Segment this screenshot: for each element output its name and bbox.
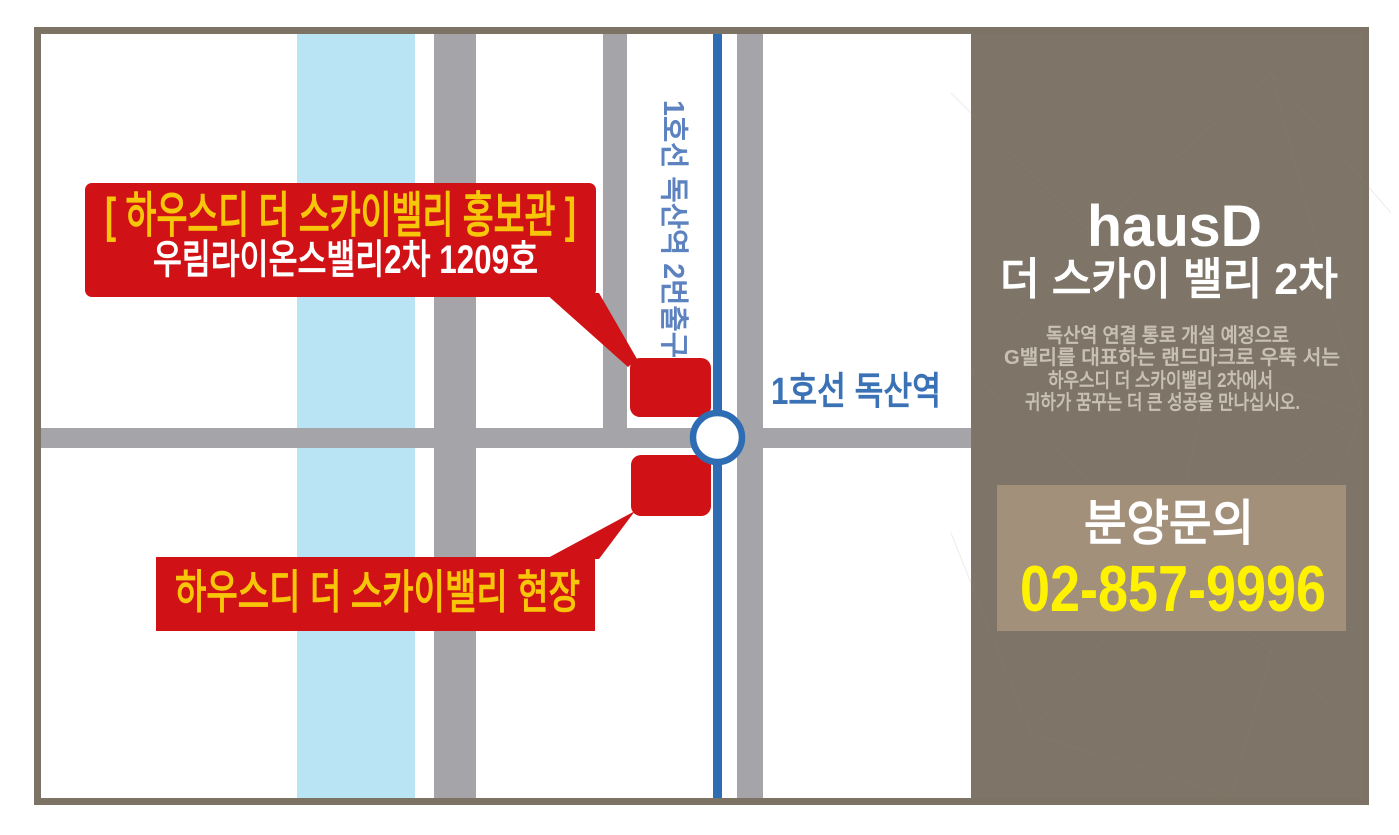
- svg-text:귀하가 꿈꾸는 더 큰 성공을 만나십시오.: 귀하가 꿈꾸는 더 큰 성공을 만나십시오.: [1025, 391, 1300, 414]
- svg-text:[ 하우스디 더 스카이밸리 홍보관 ]: [ 하우스디 더 스카이밸리 홍보관 ]: [105, 189, 576, 243]
- svg-text:G밸리를 대표하는 랜드마크로 우뚝 서는: G밸리를 대표하는 랜드마크로 우뚝 서는: [1004, 346, 1340, 369]
- svg-text:1호선 독산역: 1호선 독산역: [771, 371, 941, 413]
- svg-text:분양문의: 분양문의: [1084, 497, 1254, 551]
- svg-text:우림라이온스밸리2차 1209호: 우림라이온스밸리2차 1209호: [153, 238, 538, 282]
- svg-text:독산역 연결 통로 개설 예정으로: 독산역 연결 통로 개설 예정으로: [1046, 324, 1289, 347]
- svg-text:더 스카이 밸리 2차: 더 스카이 밸리 2차: [1000, 255, 1338, 304]
- svg-text:02-857-9996: 02-857-9996: [1020, 552, 1326, 625]
- svg-text:1호선 독산역 2번출구: 1호선 독산역 2번출구: [657, 100, 690, 358]
- svg-text:하우스디 더 스카이밸리 2차에서: 하우스디 더 스카이밸리 2차에서: [1048, 369, 1273, 392]
- svg-text:hausD: hausD: [1087, 194, 1262, 259]
- svg-text:하우스디 더 스카이밸리 현장: 하우스디 더 스카이밸리 현장: [175, 566, 580, 618]
